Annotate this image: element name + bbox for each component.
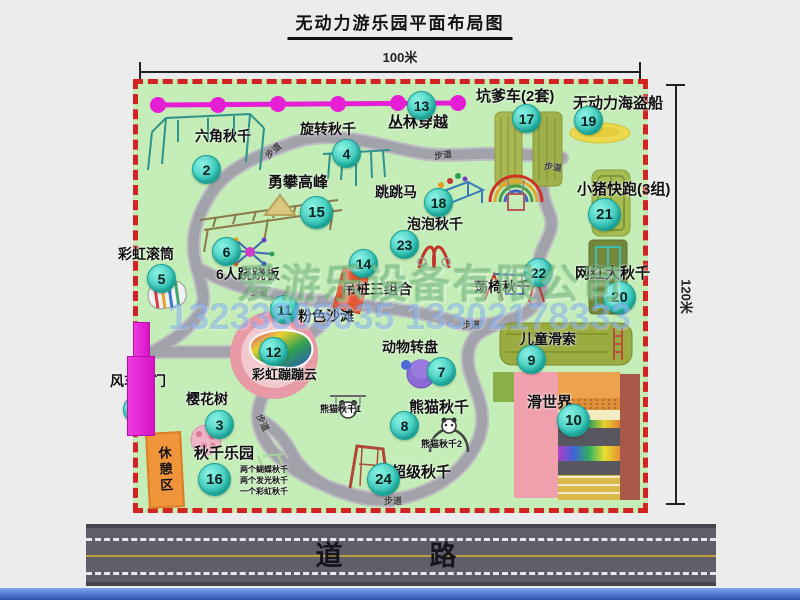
attraction-12-label: 彩虹蹦蹦云: [252, 364, 317, 383]
road: 道 路: [86, 524, 716, 586]
trail-label-4: 步道: [462, 318, 480, 331]
attraction-15-label: 勇攀高峰: [268, 171, 328, 192]
attraction-3-label: 樱花树: [186, 389, 228, 409]
attraction-23-badge: 23: [390, 230, 419, 259]
attraction-23-label: 泡泡秋千: [407, 214, 463, 234]
attraction-5-badge: 5: [147, 264, 176, 293]
attraction-7-badge: 7: [427, 357, 456, 386]
attraction-9-badge: 9: [517, 345, 546, 374]
attraction-2-label: 六角秋千: [195, 126, 251, 146]
extra-label-0: 熊猫秋千1: [320, 402, 361, 415]
attraction-21-badge: 21: [588, 198, 621, 231]
extra-label-2: 两个蝴蝶秋千: [240, 464, 288, 475]
stripe-dark-2: [558, 461, 620, 475]
attraction-16-badge: 16: [198, 463, 231, 496]
attraction-21-label: 小猪快跑(3组): [577, 178, 670, 199]
page-title: 无动力游乐园平面布局图: [288, 9, 513, 40]
park-map-layer: 爱游乐设备有限公司 13233805635 13302178333 1风车大门2…: [138, 84, 643, 508]
attraction-18-label: 跳跳马: [375, 182, 417, 202]
width-dimension-line: [140, 71, 640, 73]
attraction-20-label: 网红大秋千: [575, 262, 650, 283]
trail-label-2: 步道: [543, 159, 563, 174]
width-dimension-label: 100米: [355, 47, 445, 66]
attraction-4-label: 旋转秋千: [300, 119, 356, 139]
attraction-8-badge: 8: [390, 411, 419, 440]
windmill-gate-icon: [133, 322, 150, 358]
attraction-2-badge: 2: [192, 155, 221, 184]
attraction-10-badge: 10: [557, 404, 590, 437]
attraction-15-badge: 15: [300, 196, 333, 229]
attraction-17-label: 坑爹车(2套): [476, 85, 554, 106]
trail-label-1: 步道: [433, 147, 453, 162]
road-label: 道 路: [316, 534, 487, 573]
bottom-blue-bar: [0, 588, 800, 600]
attraction-22-badge: 22: [524, 258, 553, 287]
windmill-gate-icon: [127, 356, 155, 436]
attraction-7-label: 动物转盘: [382, 337, 438, 357]
attraction-16-label: 秋千乐园: [194, 442, 254, 463]
height-dim-tick-bottom: [666, 503, 685, 505]
attraction-14-badge: 14: [349, 249, 378, 278]
trail-label-3: 步道: [250, 285, 269, 299]
attraction-12-badge: 12: [259, 337, 288, 366]
attraction-3-badge: 3: [205, 410, 234, 439]
rest-area-box: 休憩区: [145, 431, 185, 509]
stripe-rainbow: [558, 446, 620, 461]
attraction-6-label: 6人跷跷板: [216, 264, 280, 284]
slide-world-brown-band: [620, 374, 640, 500]
attraction-14-label: 吊桩三组合: [342, 279, 412, 299]
attraction-5-label: 彩虹滚筒: [118, 244, 174, 264]
extra-label-4: 一个彩虹秋千: [240, 486, 288, 497]
attraction-11-badge: 11: [270, 295, 299, 324]
park-plan-screenshot: 无动力游乐园平面布局图 100米 120米: [0, 0, 800, 600]
extra-label-1: 熊猫秋千2: [421, 437, 462, 450]
stripe-mustard-waves: [558, 475, 620, 500]
attraction-20-badge: 20: [603, 281, 636, 314]
attraction-24-badge: 24: [367, 463, 400, 496]
attraction-8-label: 熊猫秋千: [409, 396, 469, 417]
extra-label-3: 两个发光秋千: [240, 475, 288, 486]
height-dimension-label: 120米: [678, 272, 697, 322]
bubble-swing-icon: [418, 247, 450, 268]
attraction-6-badge: 6: [212, 237, 241, 266]
attraction-13-badge: 13: [407, 91, 436, 120]
attraction-18-badge: 18: [424, 188, 453, 217]
attraction-17-badge: 17: [512, 104, 541, 133]
trail-label-6: 步道: [384, 494, 402, 507]
attraction-4-badge: 4: [332, 139, 361, 168]
attraction-24-label: 超级秋千: [391, 461, 451, 482]
height-dim-tick-top: [666, 84, 685, 86]
attraction-22-label: 荡椅秋千: [474, 277, 530, 297]
attraction-11-label: 粉色沙滩: [298, 306, 354, 326]
attraction-19-badge: 19: [574, 106, 603, 135]
